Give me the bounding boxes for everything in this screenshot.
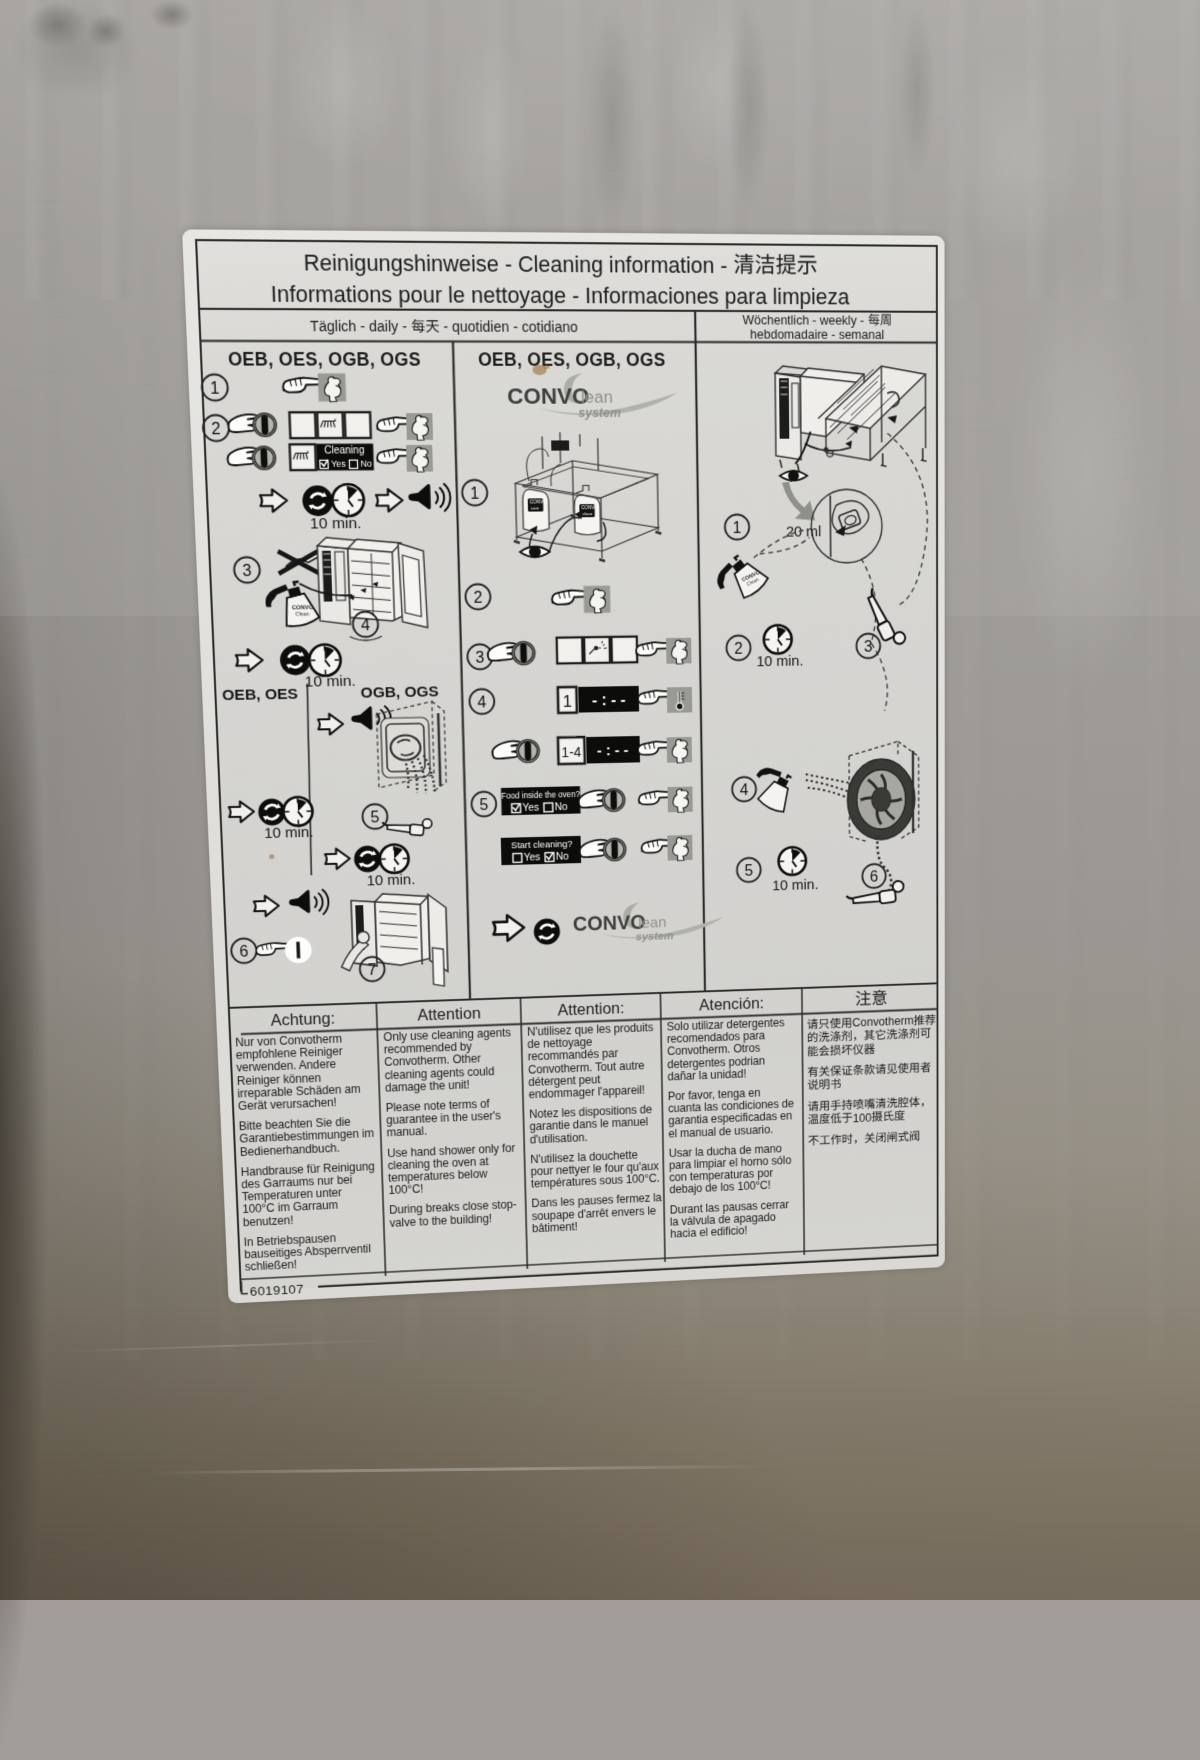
svg-text:1: 1 — [563, 692, 573, 711]
svg-text:OEB, OES: OEB, OES — [222, 685, 298, 704]
svg-text:10 min.: 10 min. — [310, 514, 362, 533]
svg-text:care: care — [531, 506, 540, 511]
svg-text:5: 5 — [479, 796, 488, 814]
svg-text:2: 2 — [473, 588, 482, 606]
svg-text:6: 6 — [870, 868, 878, 885]
svg-text:system: system — [578, 405, 621, 419]
svg-text:system: system — [636, 929, 674, 943]
svg-text:1: 1 — [733, 519, 742, 537]
svg-text:20 ml: 20 ml — [786, 523, 821, 540]
svg-text:3: 3 — [864, 638, 873, 655]
svg-text:10 min.: 10 min. — [304, 672, 356, 691]
svg-text:No: No — [360, 458, 372, 469]
svg-text:Yes: Yes — [522, 802, 539, 813]
svg-text:5: 5 — [370, 808, 379, 826]
svg-text:10 min.: 10 min. — [756, 653, 803, 670]
svg-text:OGB, OGS: OGB, OGS — [360, 682, 439, 701]
svg-text:10 min.: 10 min. — [264, 824, 314, 842]
svg-text:- : - -: - : - - — [592, 691, 626, 709]
svg-text:10 min.: 10 min. — [772, 877, 818, 894]
svg-text:Cleaning: Cleaning — [324, 445, 365, 457]
svg-text:Start cleaning?: Start cleaning? — [511, 839, 573, 851]
svg-text:CONVO: CONVO — [292, 604, 314, 611]
svg-text:4: 4 — [477, 693, 486, 711]
svg-text:4: 4 — [740, 781, 749, 798]
svg-text:1: 1 — [470, 484, 479, 502]
svg-text:No: No — [556, 851, 569, 862]
svg-text:5: 5 — [745, 862, 754, 879]
svg-text:3: 3 — [475, 648, 484, 666]
svg-text:No: No — [555, 802, 568, 813]
svg-text:Yes: Yes — [331, 458, 346, 469]
svg-text:Food inside the oven?: Food inside the oven? — [501, 790, 580, 801]
svg-text:6: 6 — [239, 943, 249, 961]
svg-text:2: 2 — [734, 640, 743, 658]
svg-text:- : - -: - : - - — [597, 742, 629, 759]
svg-text:lean: lean — [581, 387, 613, 406]
svg-text:3: 3 — [242, 561, 252, 579]
svg-text:Yes: Yes — [524, 852, 541, 863]
svg-text:7: 7 — [368, 961, 377, 978]
svg-text:2: 2 — [211, 419, 221, 437]
svg-text:1: 1 — [210, 379, 220, 398]
svg-text:1-4: 1-4 — [561, 745, 581, 761]
svg-text:clean: clean — [582, 511, 592, 516]
svg-text:Clean: Clean — [295, 612, 309, 618]
svg-text:4: 4 — [361, 616, 371, 634]
svg-text:10 min.: 10 min. — [366, 871, 415, 889]
svg-text:CONVO: CONVO — [573, 911, 646, 936]
